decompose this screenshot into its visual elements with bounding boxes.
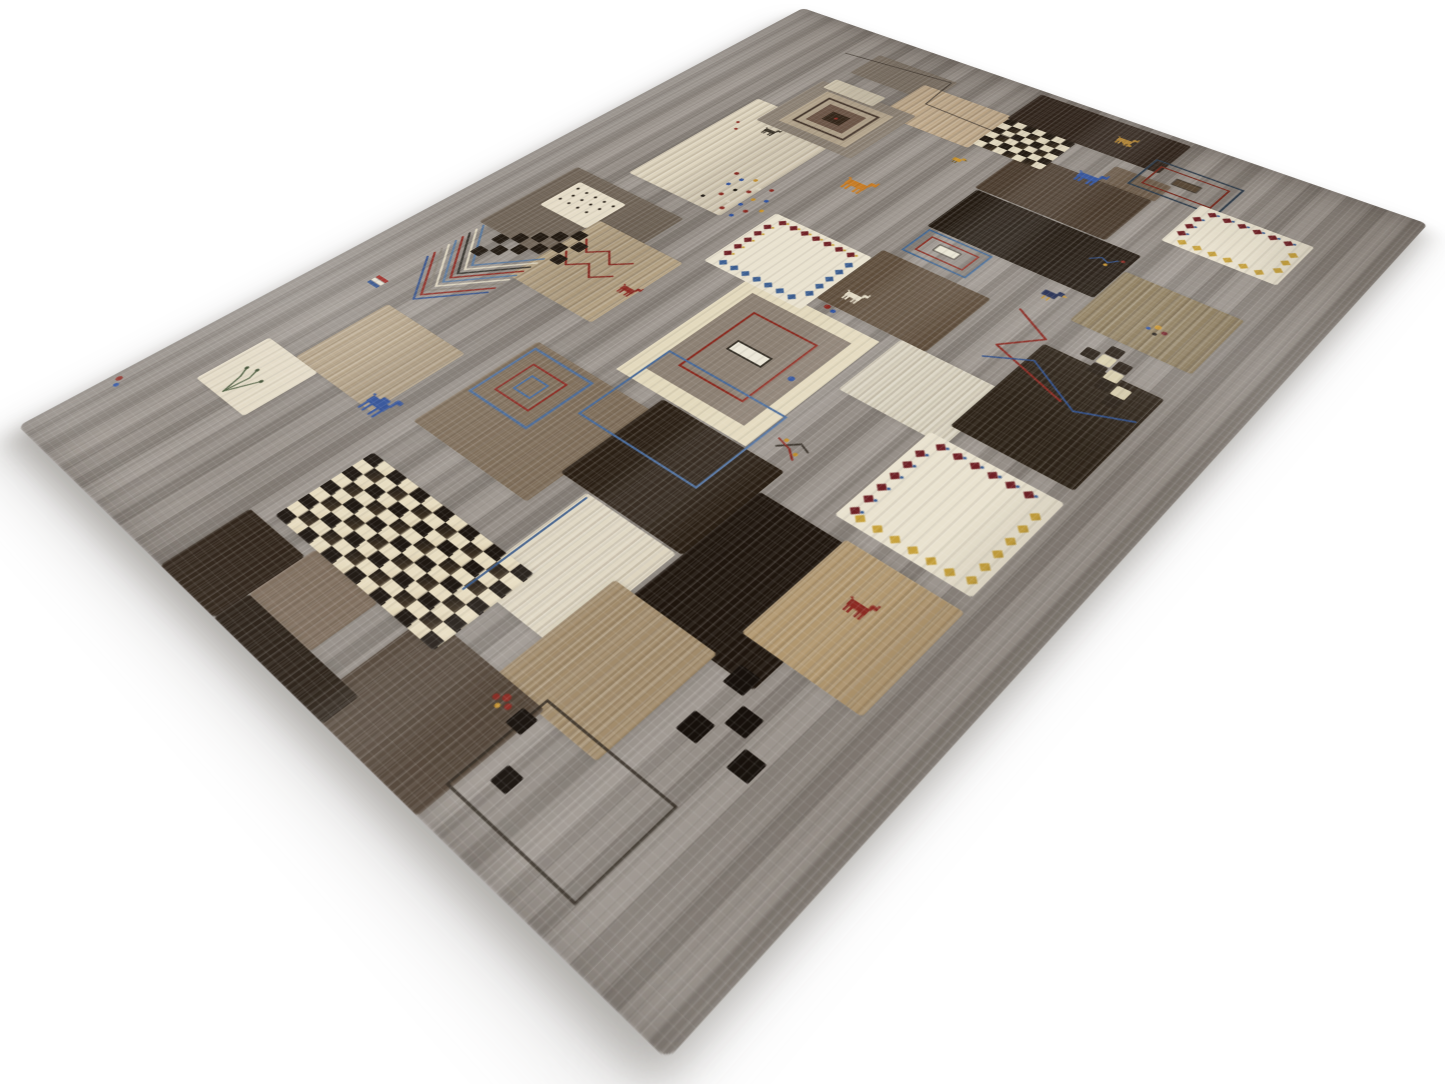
- cream-goat: [839, 287, 871, 306]
- photo-stage: [0, 0, 1445, 1084]
- gabbeh-rug: [18, 8, 1428, 1060]
- blue-diamond: [470, 349, 592, 428]
- blue-horse: [1070, 167, 1110, 188]
- gold-goat-top: [1112, 134, 1140, 148]
- scatter-right-cream: [1077, 354, 1150, 401]
- yellow-bird: [949, 156, 969, 166]
- red-goat-mid: [615, 281, 645, 299]
- flower-rect-bottom: [835, 432, 1065, 598]
- rug-motifs-layer: [18, 8, 1428, 1060]
- blue-camel: [355, 389, 404, 421]
- black-steps: [673, 665, 815, 785]
- orange-fox: [837, 173, 881, 196]
- dark-goat-cream: [759, 125, 783, 137]
- flower-rect-topright: [1161, 205, 1315, 285]
- mini-checker-scatter: [470, 211, 599, 285]
- sprout-stem-2: [222, 370, 260, 392]
- red-goat-tan: [839, 591, 881, 623]
- blue-vline: [463, 498, 586, 589]
- navy-bird: [1037, 287, 1070, 306]
- bordered-rect-top: [1128, 160, 1243, 216]
- thin-line-rect: [447, 701, 676, 904]
- scatter-right-dark: [1052, 339, 1159, 410]
- black-squares-low: [464, 707, 566, 794]
- bordered-rect-mid: [903, 230, 992, 278]
